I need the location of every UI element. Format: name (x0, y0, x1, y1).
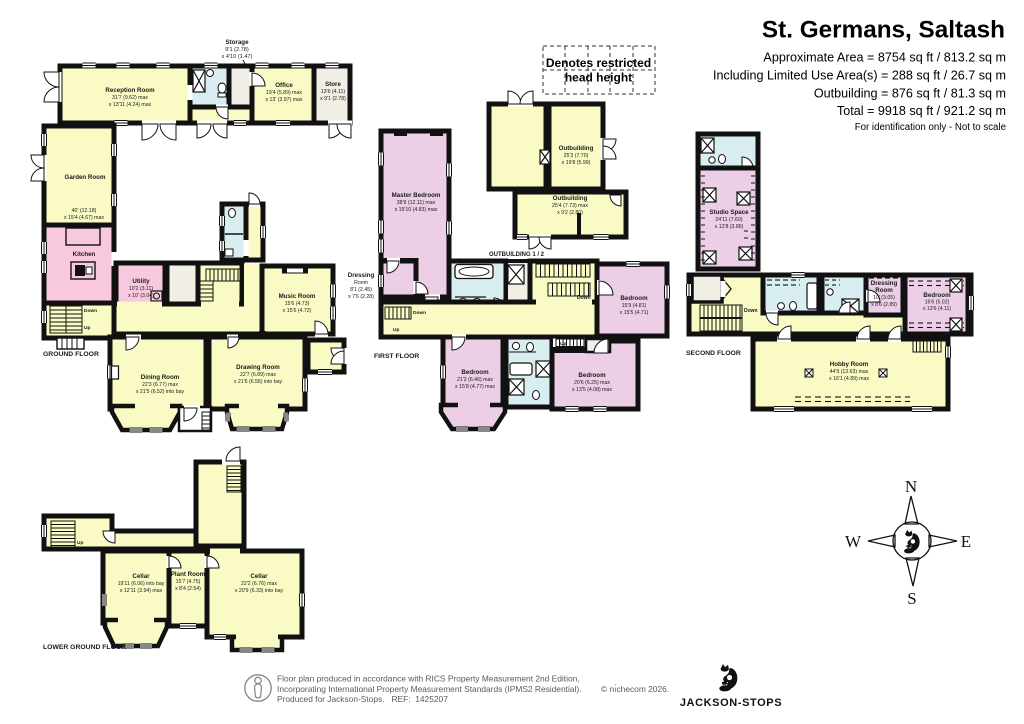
svg-text:Hobby Room: Hobby Room (830, 361, 869, 368)
svg-text:Reception Room: Reception Room (105, 87, 155, 94)
svg-text:Dining Room: Dining Room (141, 374, 180, 381)
svg-text:x 13' (3.97) max: x 13' (3.97) max (265, 97, 302, 103)
svg-text:22'3 (6.77) max: 22'3 (6.77) max (142, 382, 178, 388)
svg-text:Cellar: Cellar (132, 573, 150, 580)
svg-text:Bedroom: Bedroom (461, 369, 489, 376)
svg-text:x 13'6 (4.11): x 13'6 (4.11) (923, 306, 952, 312)
svg-text:40' (12.18): 40' (12.18) (72, 208, 97, 214)
svg-text:x 4'10 (1.47): x 4'10 (1.47) (222, 54, 253, 60)
svg-text:W: W (845, 532, 862, 551)
svg-text:Store: Store (325, 81, 341, 88)
svg-text:x 15'10 (4.83) max: x 15'10 (4.83) max (395, 207, 438, 213)
svg-text:20'6 (6.25) max: 20'6 (6.25) max (574, 380, 610, 386)
svg-text:Office: Office (275, 82, 293, 89)
svg-text:Dressing: Dressing (348, 272, 375, 279)
svg-text:Total = 9918 sq ft / 921.2 sq: Total = 9918 sq ft / 921.2 sq m (837, 104, 1006, 118)
svg-text:OUTBUILDING 1 / 2: OUTBUILDING 1 / 2 (489, 252, 545, 258)
svg-text:x 8'6 (2.89): x 8'6 (2.89) (871, 302, 897, 308)
svg-text:© nı́checom 2026.: © nı́checom 2026. (601, 683, 669, 694)
svg-text:Up: Up (560, 341, 566, 347)
svg-text:Plant Room: Plant Room (171, 571, 206, 578)
svg-text:Produced for Jackson-Stops.: Produced for Jackson-Stops. REF: 1425207 (277, 694, 448, 704)
svg-text:JACKSON-STOPS: JACKSON-STOPS (680, 697, 782, 709)
svg-text:Outbuilding: Outbuilding (553, 195, 588, 202)
svg-text:9'1 (2.78): 9'1 (2.78) (225, 47, 249, 53)
svg-text:31'7 (9.62) max: 31'7 (9.62) max (112, 95, 148, 101)
svg-text:Room: Room (354, 280, 368, 286)
svg-text:Studio Space: Studio Space (709, 209, 749, 216)
svg-text:x 15'6 (4.72): x 15'6 (4.72) (283, 308, 312, 314)
svg-text:15'7 (4.75): 15'7 (4.75) (176, 579, 201, 585)
svg-text:FIRST FLOOR: FIRST FLOOR (374, 353, 419, 360)
svg-text:x 10' (3.04): x 10' (3.04) (128, 293, 154, 299)
svg-text:Garden Room: Garden Room (65, 174, 106, 181)
svg-text:10' (3.05): 10' (3.05) (873, 295, 895, 301)
svg-text:Outbuilding: Outbuilding (559, 145, 594, 152)
svg-text:LOWER GROUND FLOOR: LOWER GROUND FLOOR (43, 644, 126, 651)
svg-text:25'3 (7.70): 25'3 (7.70) (564, 153, 589, 159)
svg-text:x 21'6 (6.56) into bay: x 21'6 (6.56) into bay (234, 379, 283, 385)
svg-text:10'2 (3.11): 10'2 (3.11) (129, 286, 154, 292)
svg-text:13'6 (4.11): 13'6 (4.11) (321, 89, 346, 95)
svg-text:Music Room: Music Room (279, 293, 316, 300)
svg-text:Including Limited Use Area(s): Including Limited Use Area(s) = 288 sq f… (713, 69, 1006, 83)
svg-text:x 20'9 (6.33) into bay: x 20'9 (6.33) into bay (235, 588, 284, 594)
svg-text:Master Bedroom: Master Bedroom (392, 192, 441, 199)
svg-text:Up: Up (77, 540, 83, 546)
svg-text:x 15'8 (4.77) max: x 15'8 (4.77) max (455, 384, 495, 390)
svg-text:15'9 (4.81): 15'9 (4.81) (622, 303, 647, 309)
svg-text:GROUND FLOOR: GROUND FLOOR (43, 351, 99, 358)
svg-text:Utility: Utility (132, 278, 150, 285)
svg-text:Up: Up (393, 327, 399, 333)
svg-text:Cellar: Cellar (250, 573, 268, 580)
svg-text:Kitchen: Kitchen (73, 251, 96, 258)
svg-text:Drawing Room: Drawing Room (236, 364, 280, 371)
svg-text:x 7'6 (2.28): x 7'6 (2.28) (348, 294, 374, 300)
svg-text:Down: Down (84, 308, 97, 314)
svg-text:24'11 (7.60): 24'11 (7.60) (715, 217, 742, 223)
svg-text:x 9'1 (2.78): x 9'1 (2.78) (320, 96, 346, 102)
svg-text:16'6 (5.02): 16'6 (5.02) (925, 300, 950, 306)
svg-text:x 12'11 (3.94) max: x 12'11 (3.94) max (120, 588, 163, 594)
svg-text:19'11 (6.06) into bay: 19'11 (6.06) into bay (118, 581, 165, 587)
svg-text:Storage: Storage (225, 39, 249, 46)
svg-text:Approximate Area = 8754 sq ft: Approximate Area = 8754 sq ft / 813.2 sq… (763, 51, 1006, 65)
svg-text:For identification only - Not: For identification only - Not to scale (855, 122, 1006, 133)
svg-text:x 19'8 (5.99): x 19'8 (5.99) (562, 160, 591, 166)
svg-text:Incorporating International Pr: Incorporating International Property Mea… (277, 684, 581, 694)
svg-text:S: S (907, 589, 916, 608)
svg-text:Room: Room (875, 287, 893, 294)
svg-text:x 15'4 (4.67) max: x 15'4 (4.67) max (64, 215, 104, 221)
svg-text:25'4 (7.73) max: 25'4 (7.73) max (552, 203, 588, 209)
svg-text:15'6 (4.73): 15'6 (4.73) (285, 301, 310, 307)
svg-text:Down: Down (413, 310, 426, 316)
svg-text:x 12'8 (3.86): x 12'8 (3.86) (715, 224, 744, 230)
svg-text:x 16'1 (4.89) max: x 16'1 (4.89) max (829, 376, 869, 382)
svg-text:8'1 (2.45): 8'1 (2.45) (350, 287, 372, 293)
svg-text:Floor plan produced in accorda: Floor plan produced in accordance with R… (277, 674, 580, 684)
svg-text:38'9 (12.11) max: 38'9 (12.11) max (397, 200, 436, 206)
svg-text:x 21'5 (6.52) into bay: x 21'5 (6.52) into bay (136, 389, 185, 395)
svg-text:Denotes restricted: Denotes restricted (546, 56, 651, 70)
svg-text:head height: head height (565, 71, 632, 85)
svg-text:Up: Up (84, 325, 90, 331)
svg-text:Bedroom: Bedroom (923, 292, 951, 299)
svg-text:St. Germans, Saltash: St. Germans, Saltash (762, 17, 1005, 44)
svg-text:Outbuilding = 876 sq ft / 81.3: Outbuilding = 876 sq ft / 81.3 sq m (814, 87, 1006, 101)
svg-text:Dressing: Dressing (871, 280, 898, 287)
svg-text:22'7 (6.89) max: 22'7 (6.89) max (240, 372, 276, 378)
svg-text:E: E (961, 532, 971, 551)
svg-text:22'2 (6.76) max: 22'2 (6.76) max (241, 581, 277, 587)
svg-text:x 13'5 (4.08) max: x 13'5 (4.08) max (572, 387, 612, 393)
svg-text:x 8'4 (2.54): x 8'4 (2.54) (175, 586, 201, 592)
svg-text:19'4 (5.89) max: 19'4 (5.89) max (266, 90, 302, 96)
svg-text:N: N (905, 477, 917, 496)
svg-text:Bedroom: Bedroom (620, 295, 648, 302)
svg-text:Bedroom: Bedroom (578, 372, 606, 379)
svg-text:x 9'2 (2.80): x 9'2 (2.80) (557, 210, 583, 216)
svg-text:44'9 (13.63) max: 44'9 (13.63) max (830, 369, 869, 375)
svg-text:x 15'5 (4.71): x 15'5 (4.71) (620, 310, 649, 316)
svg-text:21'2 (6.46) max: 21'2 (6.46) max (457, 377, 493, 383)
svg-text:x 13'11 (4.24) max: x 13'11 (4.24) max (109, 102, 152, 108)
svg-text:SECOND FLOOR: SECOND FLOOR (686, 350, 741, 357)
svg-text:Down: Down (744, 308, 758, 314)
